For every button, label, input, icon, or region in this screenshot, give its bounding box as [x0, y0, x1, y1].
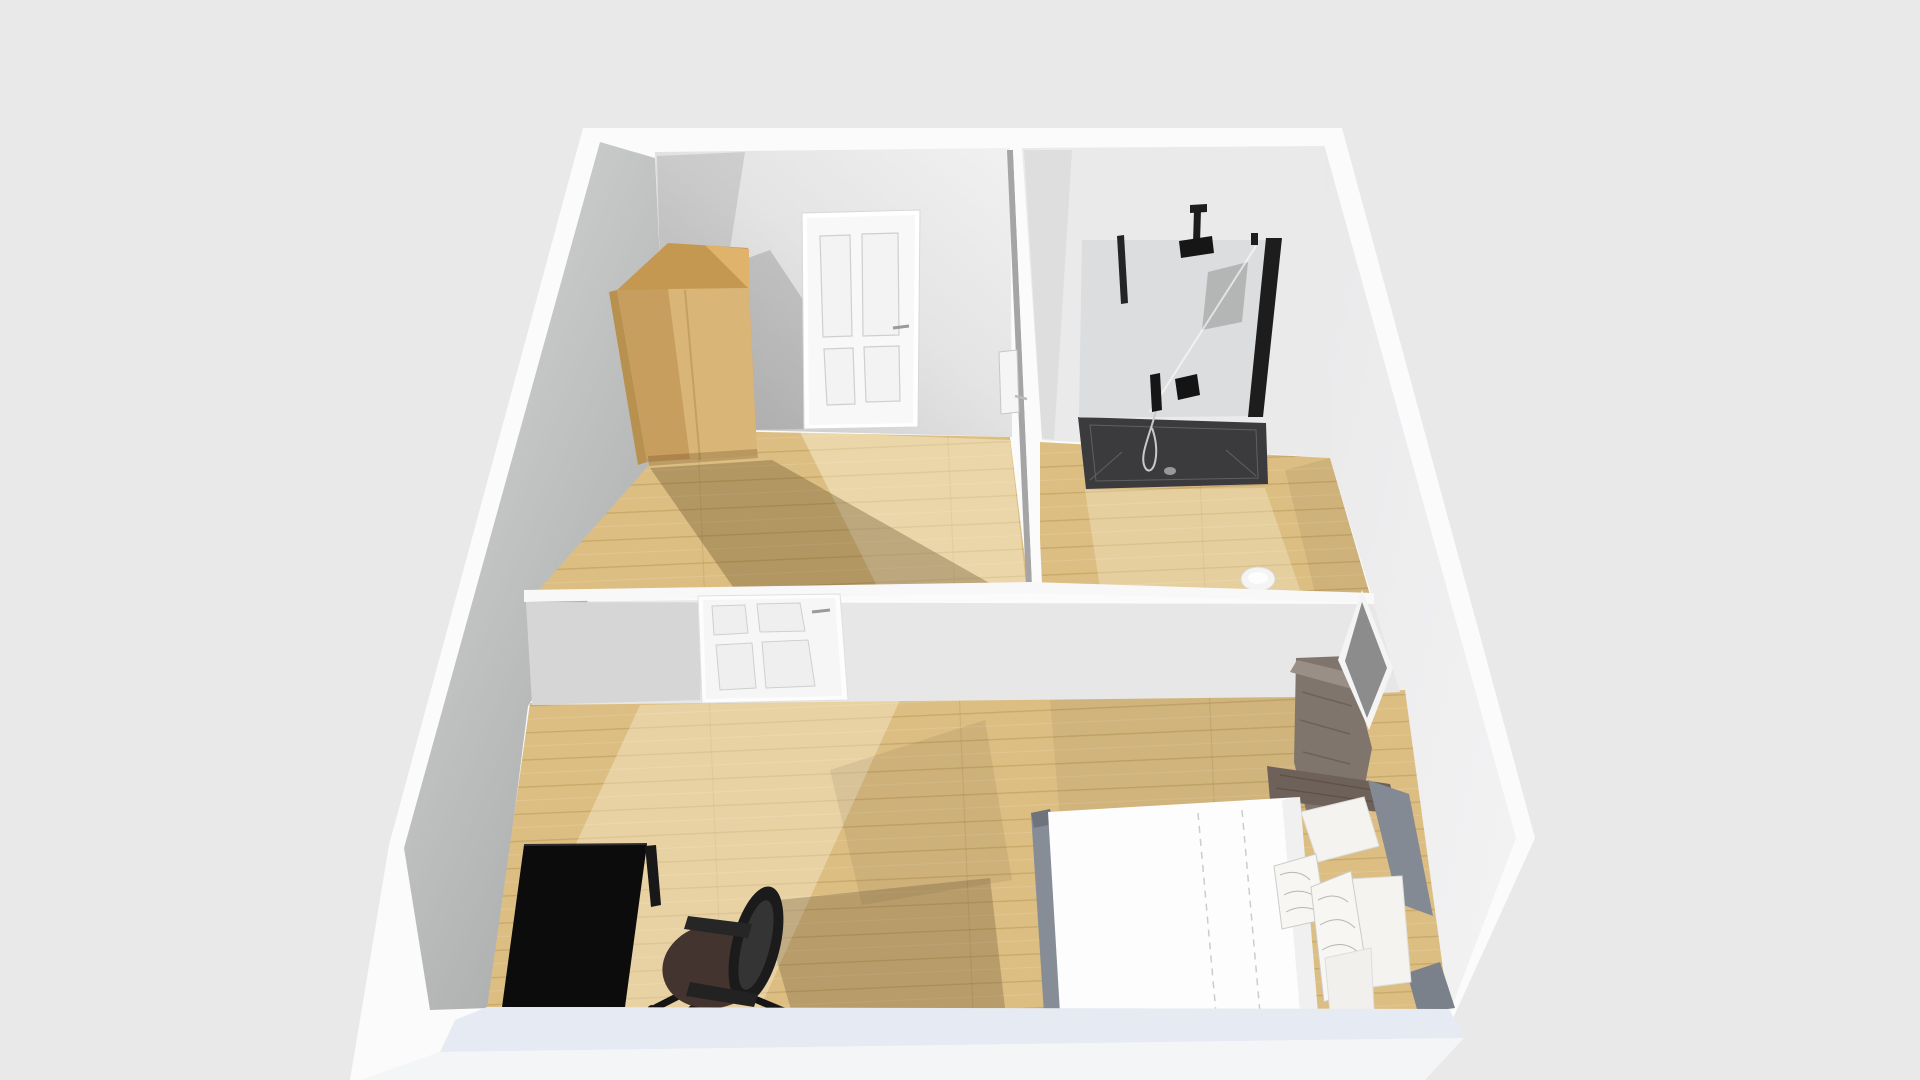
bar-bracket: [1251, 233, 1258, 245]
door-panel: [820, 235, 852, 337]
desk-top[interactable]: [502, 844, 647, 1007]
door-panel: [864, 346, 900, 402]
door-panel: [712, 605, 748, 635]
interior-door-back[interactable]: [802, 210, 920, 429]
toilet-seat: [1248, 572, 1268, 584]
duvet[interactable]: [1048, 797, 1318, 1013]
divider-shade: [526, 600, 705, 705]
handheld-shower[interactable]: [1150, 373, 1162, 412]
door-panel: [824, 348, 855, 405]
bathroom-door-jamb[interactable]: [999, 350, 1019, 414]
door-panel: [757, 603, 805, 632]
floorplan-3d-viewport: [0, 0, 1920, 1080]
walk-in-shower[interactable]: [1078, 204, 1282, 489]
door-handle[interactable]: [893, 326, 909, 328]
door-handle[interactable]: [812, 610, 830, 612]
door-panel: [716, 643, 756, 690]
desk-edge-highlight: [524, 844, 647, 845]
toilet[interactable]: [1241, 567, 1275, 591]
interior-door-divider[interactable]: [698, 594, 848, 703]
door-panel: [862, 233, 899, 336]
door-panel: [762, 640, 815, 688]
floor-drain: [1164, 467, 1176, 475]
wall-front: [360, 1007, 1464, 1080]
chair-shadow: [760, 878, 1005, 1013]
pillow-white-small: [1325, 948, 1374, 1013]
